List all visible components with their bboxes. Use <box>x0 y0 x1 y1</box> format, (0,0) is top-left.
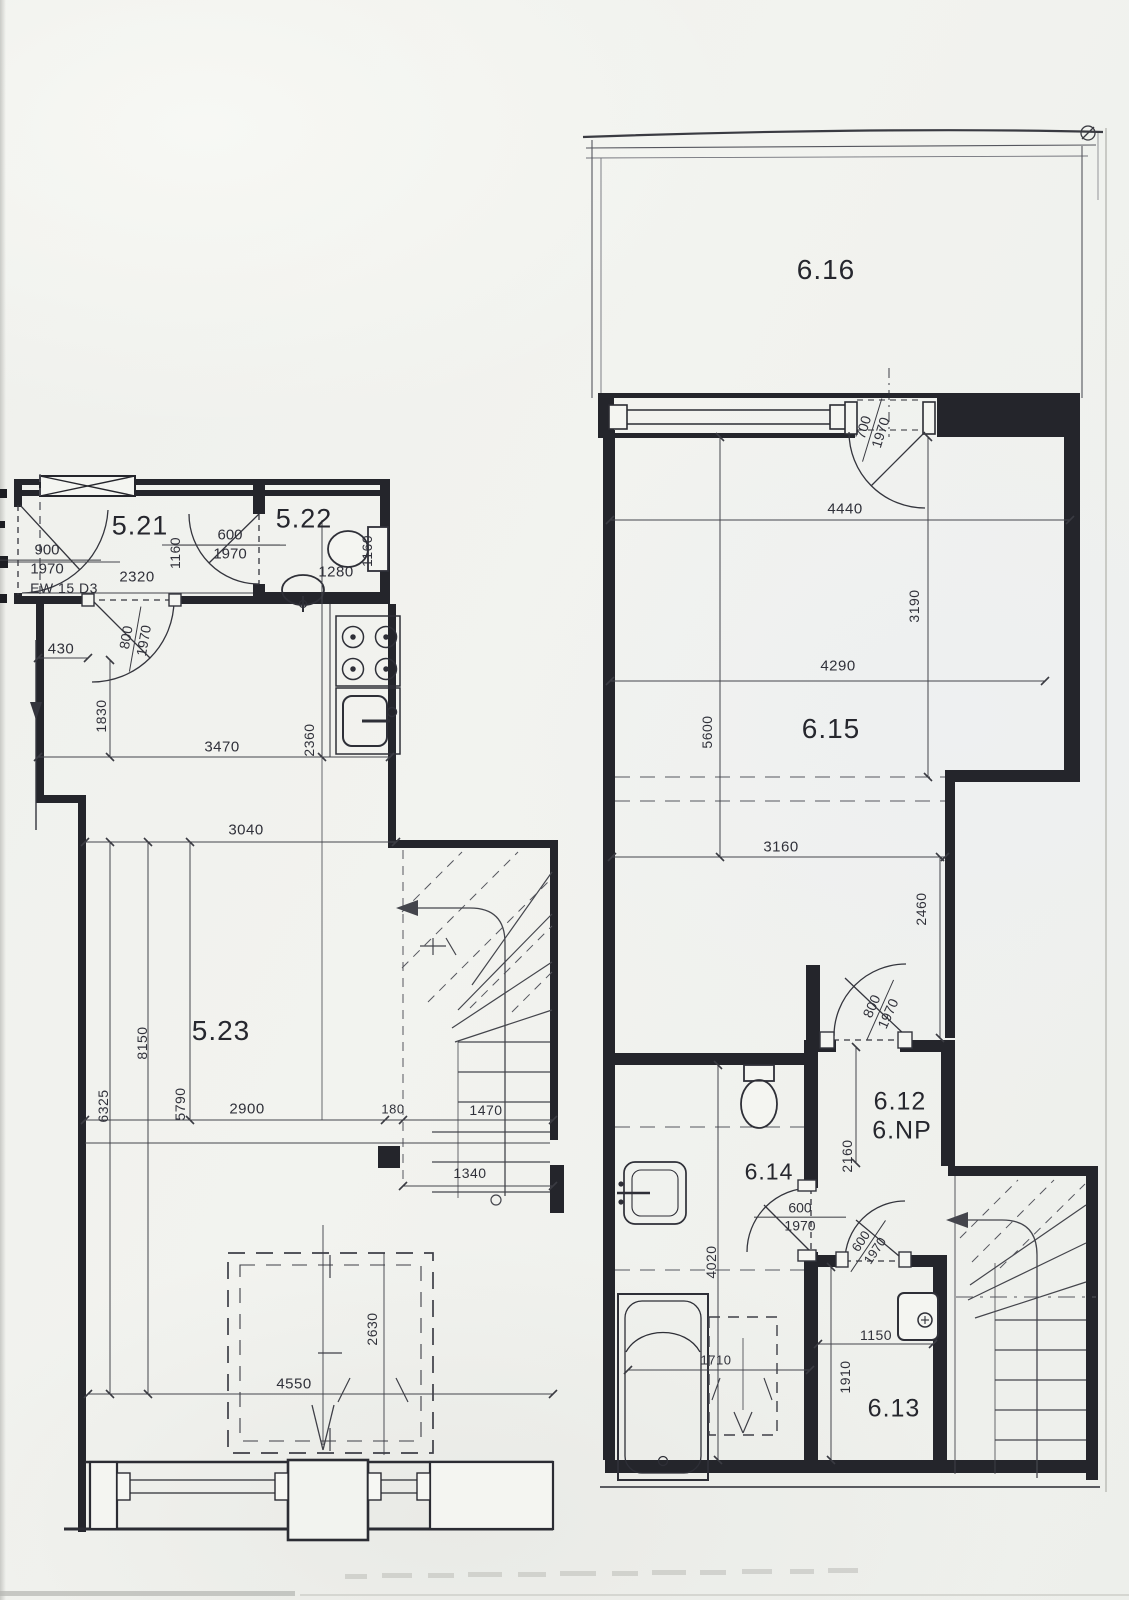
skylight-opening-left <box>228 1225 433 1455</box>
right-plan-walls <box>598 393 1098 1480</box>
stair-arrow-right <box>946 1212 968 1228</box>
floor-plan-drawing <box>0 0 1129 1600</box>
door-arc-521-entry <box>22 510 108 593</box>
right-stairs <box>946 1176 1096 1478</box>
right-plan <box>583 126 1103 1487</box>
bottom-wall-windows-left <box>64 1460 553 1540</box>
door-leaf-616 <box>871 432 925 486</box>
toilet-icon-522 <box>328 527 388 571</box>
chimney-block <box>288 1460 368 1540</box>
door-leaf-kitchen <box>92 600 150 658</box>
door-arc-613 <box>845 1201 905 1261</box>
stair-walk-line-right <box>962 1220 1037 1478</box>
door-leaf-613 <box>856 1220 905 1261</box>
scan-artifacts <box>0 128 1129 1596</box>
bathtub-icon <box>618 1294 708 1480</box>
left-plan-doors <box>18 474 259 682</box>
toilet-icon-614 <box>741 1065 777 1128</box>
left-stairs <box>396 850 552 1205</box>
scanned-floor-plan-page: 5.215.225.236.166.156.126.NP6.146.139001… <box>0 0 1129 1600</box>
door-leaf-521-522 <box>209 514 259 563</box>
left-plan-dimension-lines <box>7 520 553 1394</box>
vent-shaft-icon <box>40 476 135 496</box>
stair-arrow-left <box>396 900 418 916</box>
water-heater-icon <box>898 1293 938 1340</box>
scan-edge-marks <box>0 489 8 603</box>
terrace-616-railing <box>583 126 1103 398</box>
terrace-drain-icon <box>1081 126 1095 140</box>
skylight-opening-right <box>709 1317 777 1435</box>
terrace-window-band <box>609 368 935 437</box>
right-plan-doors <box>747 432 925 1267</box>
left-plan-walls <box>14 479 564 1532</box>
washbasin-icon-614 <box>617 1162 686 1224</box>
right-plan-dimension-lines <box>610 437 1070 1460</box>
illegible-footer-smudge <box>345 1568 858 1579</box>
skylight-arrow-right <box>734 1412 743 1433</box>
door-leaf-612 <box>845 978 906 1036</box>
door-leaf-521-entry <box>20 505 80 570</box>
left-plan <box>0 474 564 1540</box>
door-leaf-614 <box>764 1205 811 1252</box>
stair-walk-line-left <box>412 908 505 1196</box>
skylight-arrow-left <box>312 1405 323 1450</box>
